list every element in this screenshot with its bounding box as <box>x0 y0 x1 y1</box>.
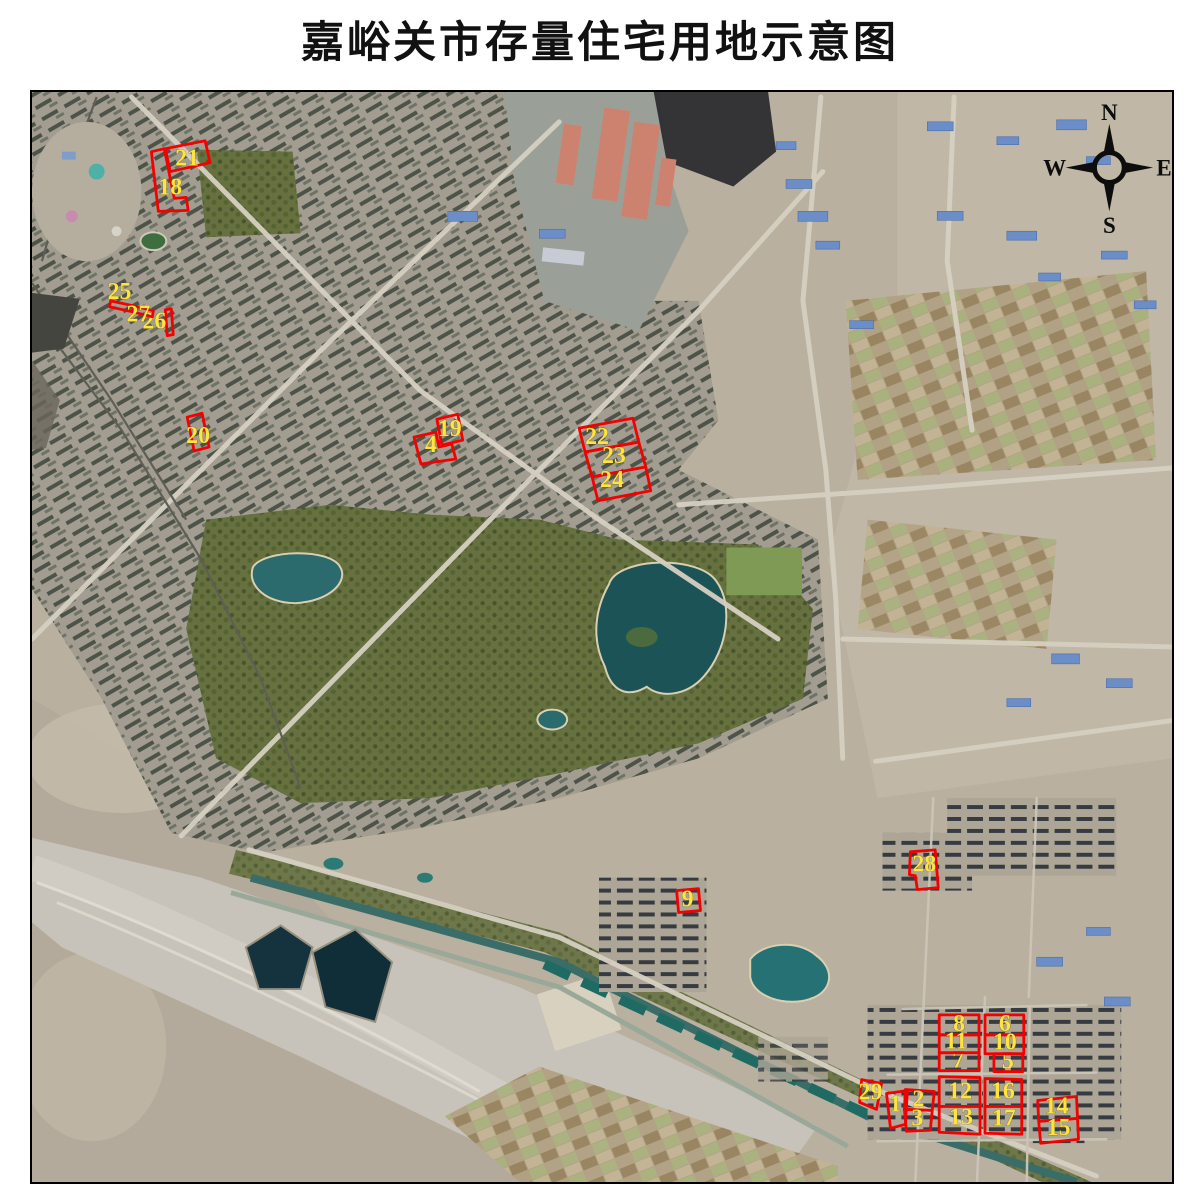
parcel-label-11: 11 <box>945 1029 968 1055</box>
compass-w-label: W <box>1043 156 1066 181</box>
parcel-label-3: 3 <box>911 1105 923 1131</box>
amusement-park <box>32 122 141 261</box>
pond <box>537 710 567 730</box>
page: 嘉峪关市存量住宅用地示意图 <box>0 0 1200 1200</box>
parcel-label-10: 10 <box>993 1030 1017 1056</box>
parcel-label-9: 9 <box>682 887 694 913</box>
parcel-label-4: 4 <box>425 432 437 458</box>
parcel-label-20: 20 <box>186 423 210 449</box>
parcel-label-17: 17 <box>992 1105 1016 1131</box>
parcel-label-13: 13 <box>949 1104 973 1130</box>
parcel-label-12: 12 <box>948 1078 972 1104</box>
parcel-label-23: 23 <box>602 443 626 469</box>
lake-central <box>596 563 726 694</box>
parcel-label-18: 18 <box>158 174 182 200</box>
parcel-label-16: 16 <box>991 1078 1015 1104</box>
satellite-map: 1234567891011121314151617181920212223242… <box>32 92 1172 1182</box>
parcel-label-19: 19 <box>438 416 462 442</box>
parcel-label-29: 29 <box>859 1079 883 1105</box>
compass-s-label: S <box>1103 213 1116 238</box>
map-title: 嘉峪关市存量住宅用地示意图 <box>0 8 1200 70</box>
parcel-label-21: 21 <box>175 146 199 172</box>
stadium <box>140 232 166 250</box>
parcel-label-24: 24 <box>600 467 624 493</box>
parcel-label-28: 28 <box>912 852 936 878</box>
parcel-label-1: 1 <box>889 1091 901 1117</box>
map-frame: 1234567891011121314151617181920212223242… <box>30 90 1174 1184</box>
parcel-label-15: 15 <box>1047 1115 1071 1141</box>
compass-n-label: N <box>1101 100 1118 125</box>
compass-e-label: E <box>1156 156 1171 181</box>
parcel-label-27: 27 <box>127 302 151 328</box>
